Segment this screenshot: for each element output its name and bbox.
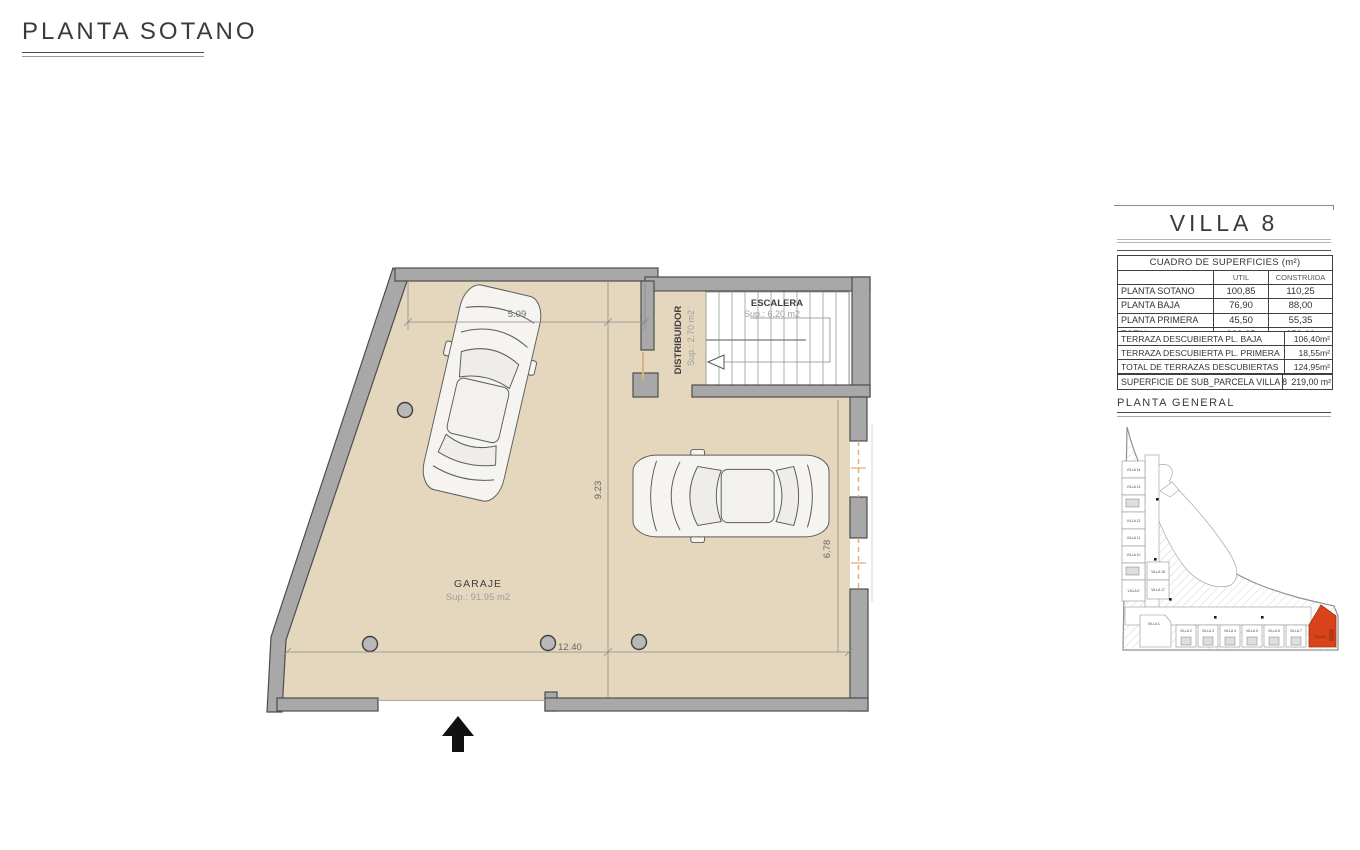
svg-text:VILLA 2: VILLA 2 — [1180, 629, 1192, 633]
highlighted-villa-label: VILLA 8 — [1314, 635, 1325, 639]
row-util: 100,85 — [1214, 285, 1269, 299]
column-marker — [541, 636, 556, 651]
surfaces-table-header-row: UTIL CONSTRUIDA — [1118, 271, 1332, 285]
row-label: TOTAL DE TERRAZAS DESCUBIERTAS — [1118, 360, 1285, 373]
row-construida: 110,25 — [1269, 285, 1332, 299]
stair-room-area: Sup.: 6.20 m2 — [744, 309, 800, 319]
distributor-wall — [641, 281, 654, 350]
site-plan-title: PLANTA GENERAL — [1117, 397, 1235, 409]
title-underline-light — [22, 56, 204, 57]
bottom-wall-left — [277, 698, 378, 711]
svg-text:VILLA 14: VILLA 14 — [1127, 468, 1141, 472]
parcel-surface-box: SUPERFICIE DE SUB_PARCELA VILLA 8 219,00… — [1117, 374, 1333, 390]
svg-text:VILLA 9: VILLA 9 — [1128, 589, 1140, 593]
villa-title-underline — [1117, 239, 1331, 240]
panel-top-line — [1114, 205, 1334, 206]
basement-floor-plan: 5.09 9.23 12.40 6.78 GARAJE Sup.: 91.95 … — [250, 250, 890, 760]
svg-text:VILLA 3: VILLA 3 — [1202, 629, 1214, 633]
row-util: 76,90 — [1214, 299, 1269, 313]
stair-bottom-wall — [692, 385, 870, 397]
table-row: TERRAZA DESCUBIERTA PL. BAJA 106,40m² — [1118, 332, 1332, 346]
entrance-arrow-icon — [442, 716, 474, 752]
garage-room-area: Sup.: 91.95 m2 — [446, 592, 510, 603]
dimension-right-vertical: 6.78 — [822, 540, 833, 559]
villa-title-underline-dark — [1117, 250, 1331, 251]
terraces-table: TERRAZA DESCUBIERTA PL. BAJA 106,40m² TE… — [1117, 331, 1333, 374]
table-row: PLANTA SOTANO 100,85 110,25 — [1118, 285, 1332, 300]
svg-text:VILLA 1: VILLA 1 — [1148, 622, 1160, 626]
row-label: PLANTA PRIMERA — [1118, 314, 1214, 328]
row-util: 45,50 — [1214, 314, 1269, 328]
site-plan-underline-light — [1117, 416, 1331, 417]
table-row: TERRAZA DESCUBIERTA PL. PRIMERA 18,55m² — [1118, 346, 1332, 360]
villa-title: VILLA 8 — [1117, 210, 1331, 237]
svg-text:VILLA 11: VILLA 11 — [1127, 536, 1141, 540]
dimension-top: 5.09 — [508, 309, 527, 320]
title-underline — [22, 52, 204, 53]
row-construida: 55,35 — [1269, 314, 1332, 328]
svg-text:VILLA 7: VILLA 7 — [1290, 629, 1302, 633]
table-row: PLANTA BAJA 76,90 88,00 — [1118, 299, 1332, 314]
svg-text:VILLA 16: VILLA 16 — [1151, 570, 1165, 574]
row-value: 219,00 m² — [1283, 375, 1332, 389]
top-wall — [395, 268, 658, 281]
villa-title-underline — [1117, 242, 1331, 243]
column-marker — [632, 635, 647, 650]
column-marker — [363, 637, 378, 652]
row-value: 106,40m² — [1285, 332, 1332, 345]
stair-top-wall — [645, 277, 870, 291]
row-value: 124,95m² — [1285, 360, 1332, 373]
page-title: PLANTA SOTANO — [22, 18, 258, 46]
right-wall-lower — [850, 589, 868, 711]
surfaces-table: CUADRO DE SUPERFICIES (m²) UTIL CONSTRUI… — [1117, 255, 1333, 343]
stair-right-wall — [852, 277, 870, 397]
distributor-room-area: Sup.: 2.70 m2 — [686, 310, 696, 366]
svg-text:VILLA 5: VILLA 5 — [1246, 629, 1258, 633]
wall-notch — [633, 373, 658, 397]
table-row: PLANTA PRIMERA 45,50 55,35 — [1118, 314, 1332, 329]
svg-text:VILLA 6: VILLA 6 — [1268, 629, 1280, 633]
table-row: TOTAL DE TERRAZAS DESCUBIERTAS 124,95m² — [1118, 360, 1332, 373]
row-label: SUPERFICIE DE SUB_PARCELA VILLA 8 — [1118, 375, 1283, 389]
panel-top-line-tick — [1333, 205, 1334, 210]
empty-cell — [1118, 271, 1214, 284]
floor-plan-sheet: { "page": { "title": "PLANTA SOTANO" }, … — [0, 0, 1360, 850]
villa-inner-boxes — [1147, 562, 1169, 599]
right-wall-pillar — [850, 497, 867, 538]
row-label: PLANTA SOTANO — [1118, 285, 1214, 299]
surfaces-table-title: CUADRO DE SUPERFICIES (m²) — [1118, 256, 1332, 271]
car-top-view-horizontal — [633, 449, 829, 542]
row-label: PLANTA BAJA — [1118, 299, 1214, 313]
svg-text:VILLA 13: VILLA 13 — [1127, 485, 1141, 489]
dimension-middle-vertical: 9.23 — [593, 481, 604, 500]
row-construida: 88,00 — [1269, 299, 1332, 313]
col-header-util: UTIL — [1214, 271, 1269, 284]
villa-row-left — [1122, 461, 1145, 601]
svg-text:VILLA 12: VILLA 12 — [1127, 519, 1141, 523]
svg-text:VILLA 4: VILLA 4 — [1224, 629, 1236, 633]
bottom-wall-right — [545, 698, 868, 711]
row-label: TERRAZA DESCUBIERTA PL. PRIMERA — [1118, 346, 1285, 359]
dimension-bottom: 12.40 — [558, 642, 582, 653]
garage-room-label: GARAJE — [454, 578, 502, 590]
row-label: TERRAZA DESCUBIERTA PL. BAJA — [1118, 332, 1285, 345]
stair-room-label: ESCALERA — [751, 298, 803, 309]
svg-text:VILLA 10: VILLA 10 — [1127, 553, 1141, 557]
row-value: 18,55m² — [1285, 346, 1332, 359]
site-plan-map: VILLA 14 VILLA 13 VILLA 12 VILLA 11 VILL… — [1115, 419, 1345, 654]
column-marker — [398, 403, 413, 418]
site-plan-underline — [1117, 412, 1331, 413]
right-wall-upper — [850, 397, 867, 441]
svg-text:VILLA 17: VILLA 17 — [1151, 588, 1165, 592]
col-header-construida: CONSTRUIDA — [1269, 271, 1332, 284]
distributor-room-label: DISTRIBUIDOR — [673, 306, 684, 375]
